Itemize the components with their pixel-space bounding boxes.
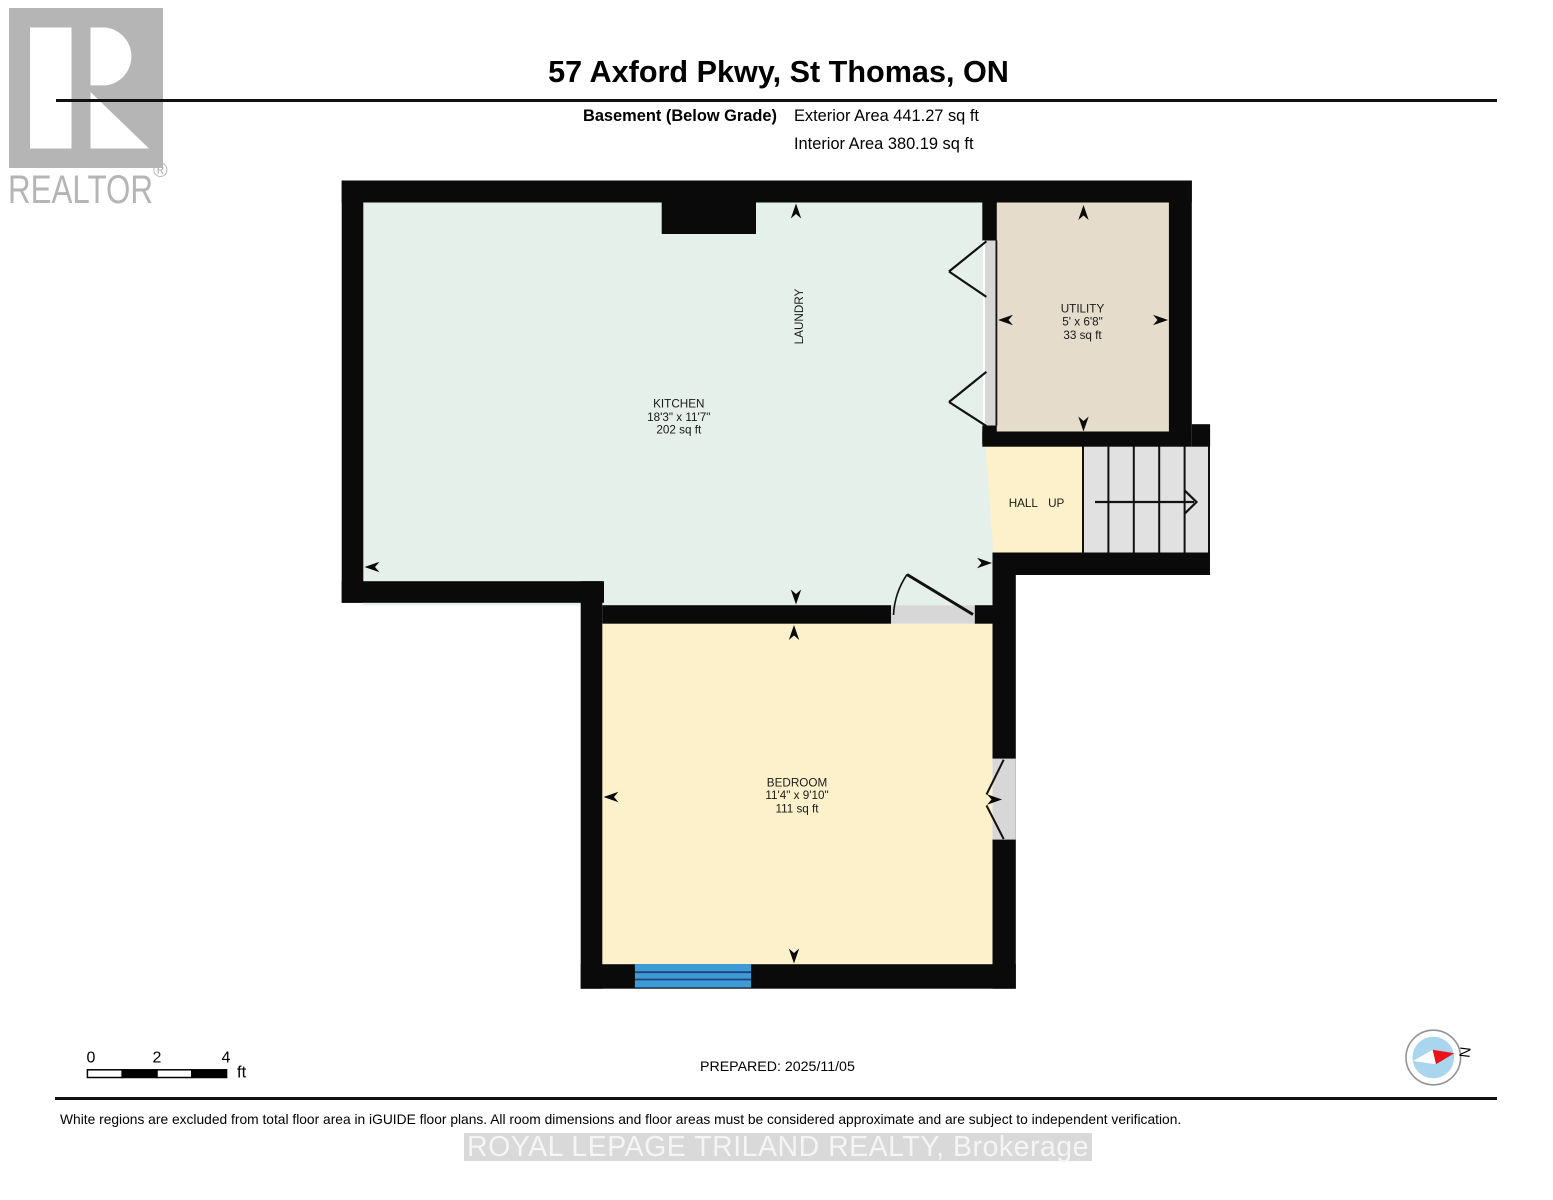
svg-text:33 sq ft: 33 sq ft bbox=[1063, 329, 1102, 342]
svg-text:4: 4 bbox=[222, 1050, 231, 1067]
svg-text:ft: ft bbox=[237, 1064, 247, 1082]
svg-text:KITCHEN: KITCHEN bbox=[653, 397, 704, 410]
svg-text:111 sq ft: 111 sq ft bbox=[775, 802, 819, 815]
svg-text:UTILITY: UTILITY bbox=[1061, 302, 1105, 315]
svg-text:LAUNDRY: LAUNDRY bbox=[793, 288, 806, 344]
svg-text:N: N bbox=[1455, 1046, 1473, 1059]
svg-text:BEDROOM: BEDROOM bbox=[767, 776, 827, 789]
svg-text:202 sq ft: 202 sq ft bbox=[656, 424, 702, 437]
svg-text:18'3" x 11'7": 18'3" x 11'7" bbox=[647, 411, 710, 424]
svg-text:5' x 6'8": 5' x 6'8" bbox=[1062, 316, 1102, 329]
svg-text:2: 2 bbox=[153, 1050, 162, 1067]
svg-text:0: 0 bbox=[87, 1050, 96, 1067]
svg-text:HALL: HALL bbox=[1009, 497, 1039, 510]
svg-text:UP: UP bbox=[1048, 497, 1064, 510]
svg-text:11'4" x 9'10": 11'4" x 9'10" bbox=[765, 789, 828, 802]
